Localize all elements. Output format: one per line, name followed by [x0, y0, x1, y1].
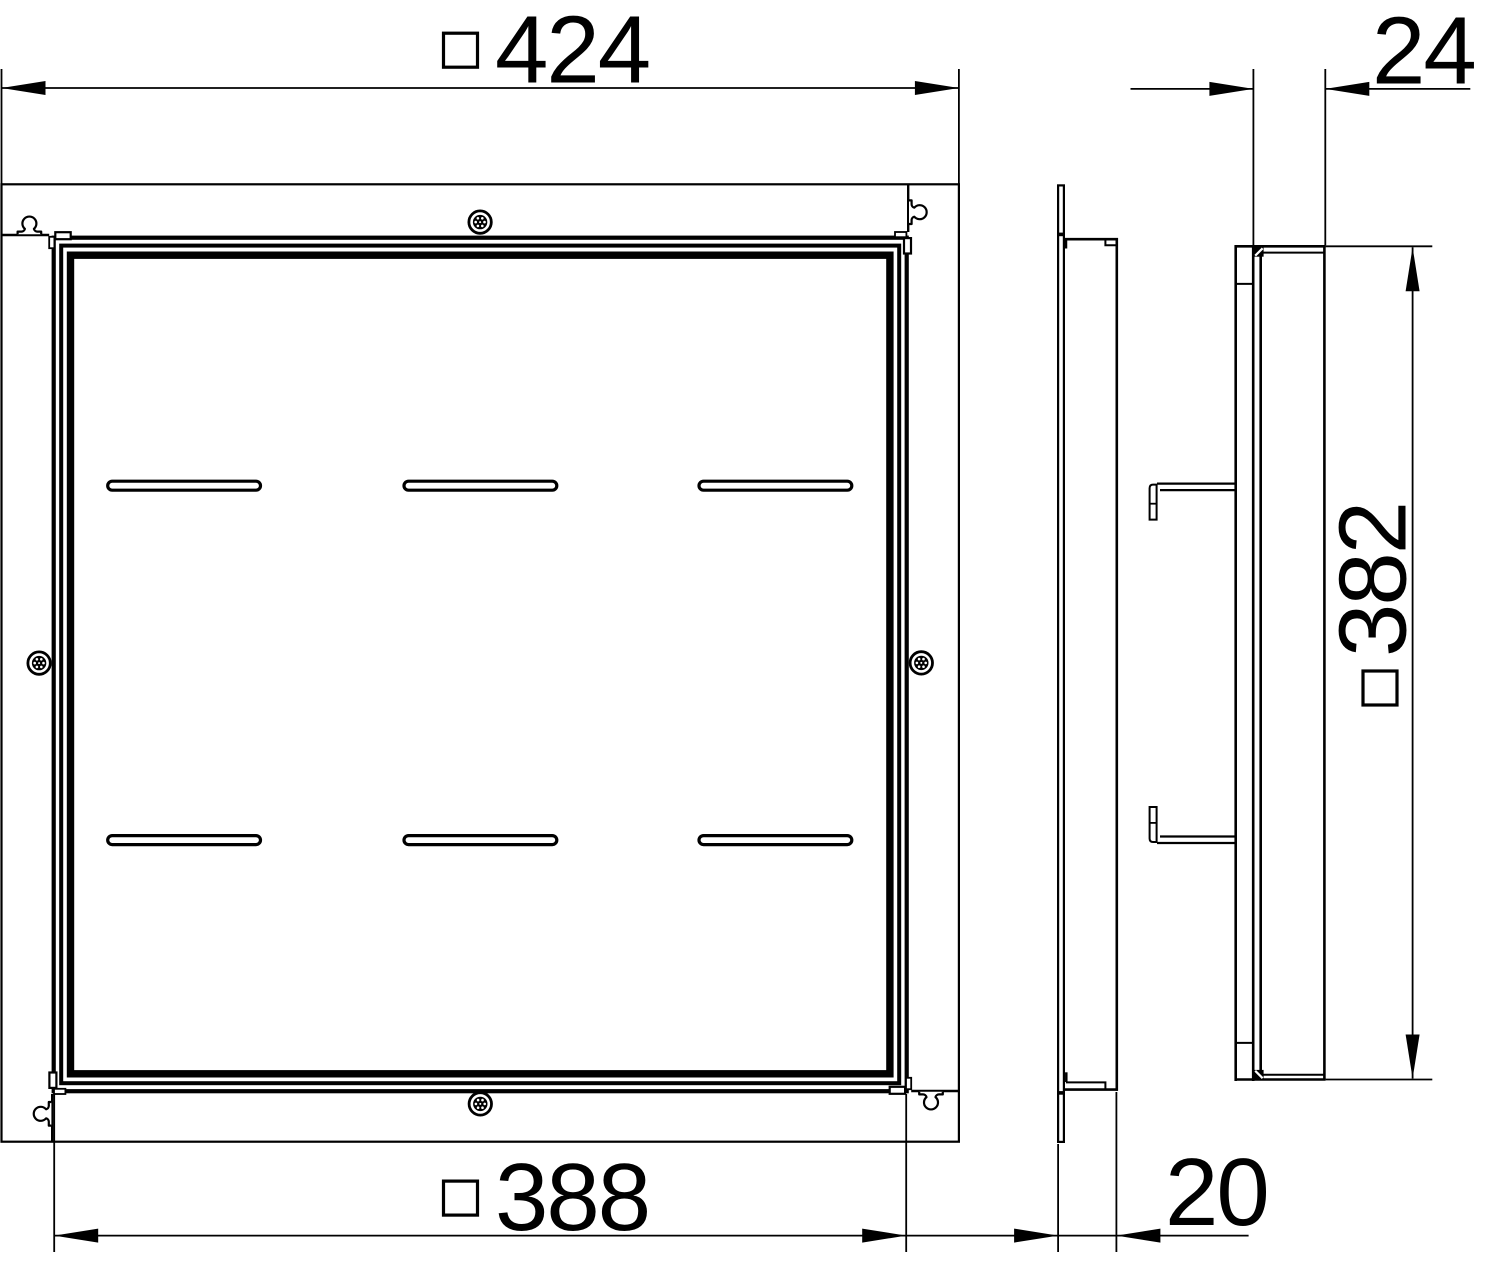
- svg-text:382: 382: [1320, 503, 1427, 657]
- svg-text:424: 424: [495, 0, 649, 104]
- svg-text:24: 24: [1372, 0, 1475, 105]
- svg-text:20: 20: [1165, 1139, 1268, 1246]
- svg-text:388: 388: [495, 1144, 649, 1251]
